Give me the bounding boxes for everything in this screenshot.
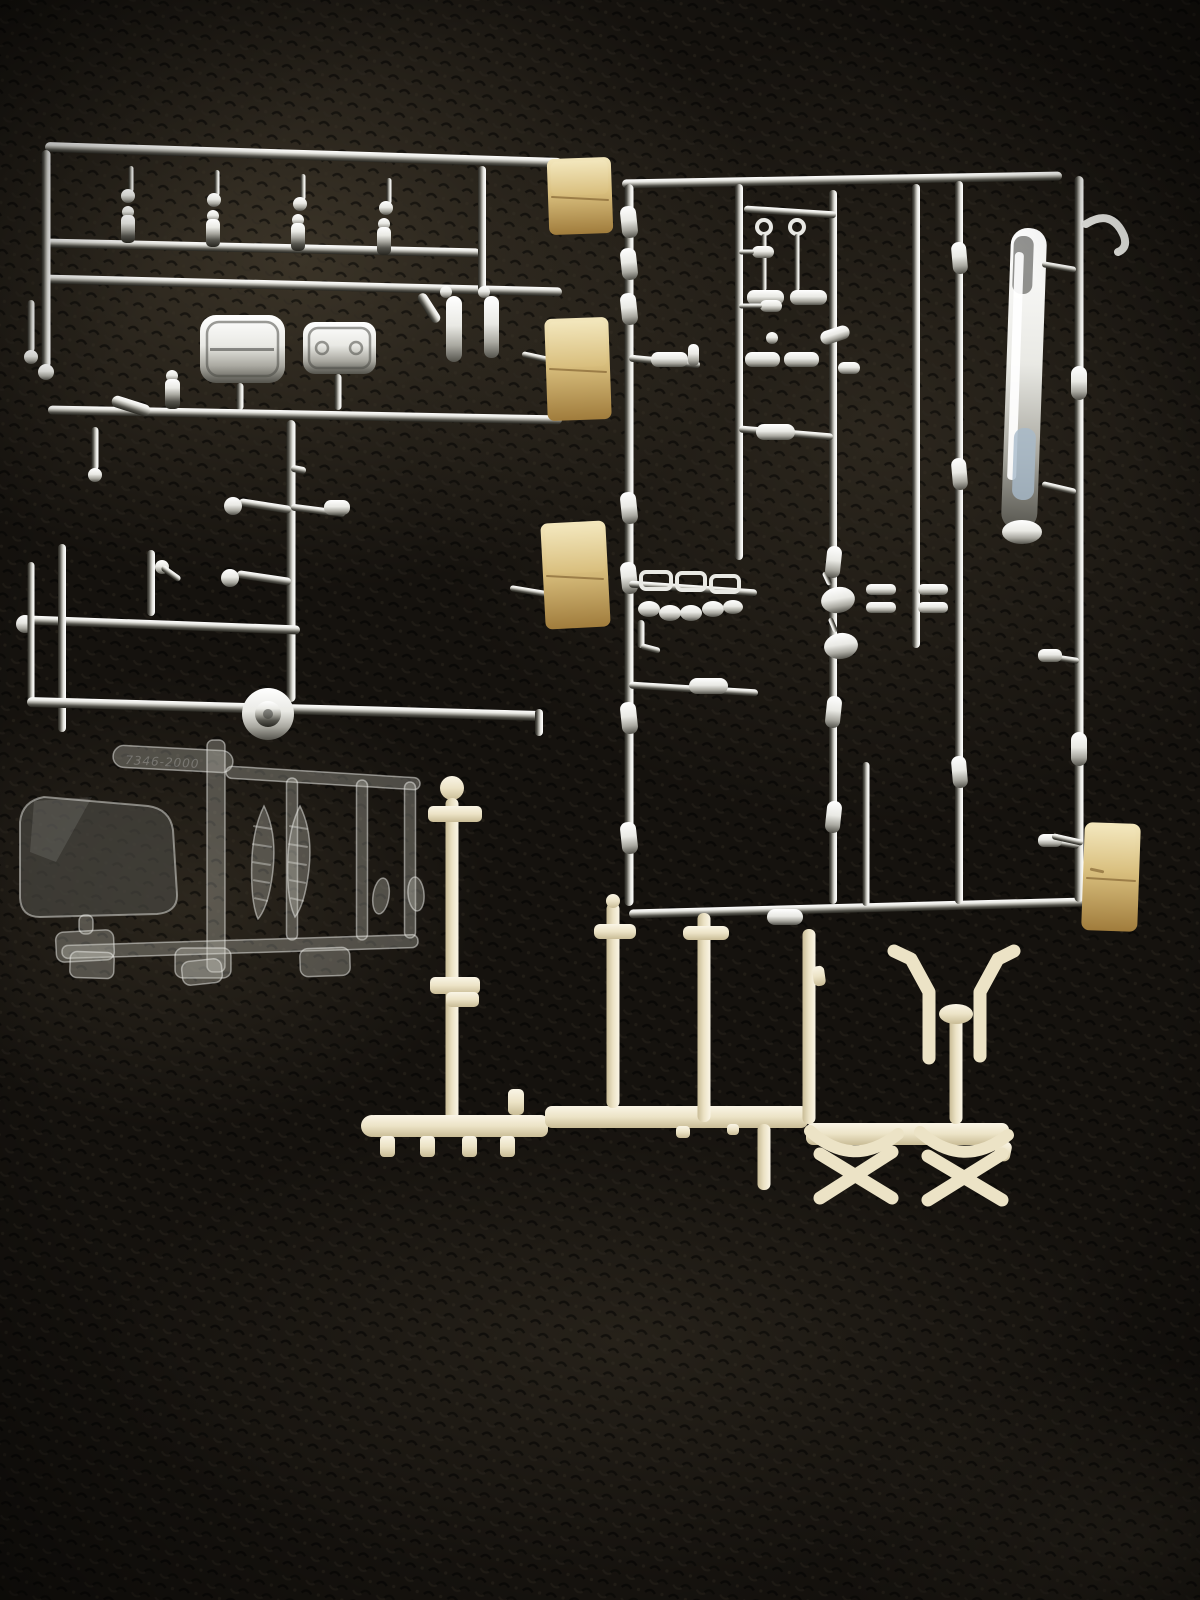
photo-vignette (0, 0, 1200, 1600)
photo-canvas: 7346-2000 (0, 0, 1200, 1600)
photo-of-model-kit-sprues: Photograph of plastic model kit part spr… (0, 0, 1200, 1600)
vignette (0, 0, 1200, 1600)
scene-root: 7346-2000 (0, 0, 1200, 1600)
